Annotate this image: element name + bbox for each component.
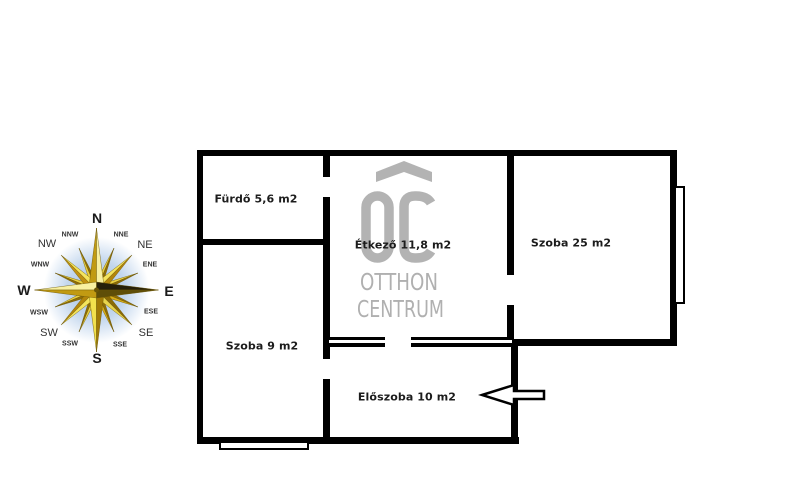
room-label-bathroom: Fürdő 5,6 m2: [214, 193, 297, 206]
compass-label-ese: ESE: [144, 309, 158, 316]
compass-label-sse: SSE: [113, 342, 127, 349]
compass-label-nnw: NNW: [62, 232, 79, 239]
compass-label-ene: ENE: [143, 262, 157, 269]
compass-label-nw: NW: [38, 238, 56, 250]
watermark-line1: OTTHON: [360, 270, 438, 296]
room-label-room9: Szoba 9 m2: [226, 340, 299, 353]
wall-room25-bottom: [507, 339, 677, 346]
wall-divider-left-middle: [323, 197, 330, 359]
room-label-room25: Szoba 25 m2: [531, 237, 611, 250]
compass-label-ne: NE: [137, 239, 152, 251]
floor-plan-page: N NNE NE ENE E ESE SE SSE S SSW SW WSW W…: [0, 0, 800, 479]
watermark-line2: CENTRUM: [357, 297, 444, 323]
compass-label-wnw: WNW: [31, 262, 49, 269]
window-marker-room9: [219, 441, 309, 450]
compass-label-s: S: [92, 350, 101, 366]
wall-hallway-top-right: [411, 337, 512, 347]
wall-bathroom-bottom: [197, 239, 329, 245]
compass-center-dot: [94, 288, 99, 293]
compass-label-n: N: [92, 210, 102, 226]
compass-label-se: SE: [139, 327, 154, 339]
wall-divider-left-upper: [323, 150, 330, 177]
room-label-dining: Étkező 11,8 m2: [355, 239, 452, 252]
wall-divider-dining-room25-upper: [507, 150, 514, 275]
room-label-hallway: Előszoba 10 m2: [358, 391, 456, 404]
wall-outer-left: [197, 150, 203, 444]
wall-hallway-top-left: [329, 337, 385, 347]
compass-label-e: E: [164, 283, 173, 299]
window-marker-room25: [674, 186, 685, 304]
compass-label-ssw: SSW: [62, 341, 78, 348]
compass-label-sw: SW: [40, 327, 58, 339]
compass-label-w: W: [17, 282, 30, 298]
entrance-arrow-shape: [482, 385, 544, 405]
entrance-arrow-icon: [478, 380, 548, 408]
oc-logo-chevron-icon: [376, 161, 432, 182]
compass-label-nne: NNE: [114, 232, 129, 239]
wall-divider-left-lower: [323, 379, 330, 444]
wall-outer-top: [197, 150, 677, 156]
compass-label-wsw: WSW: [30, 310, 48, 317]
